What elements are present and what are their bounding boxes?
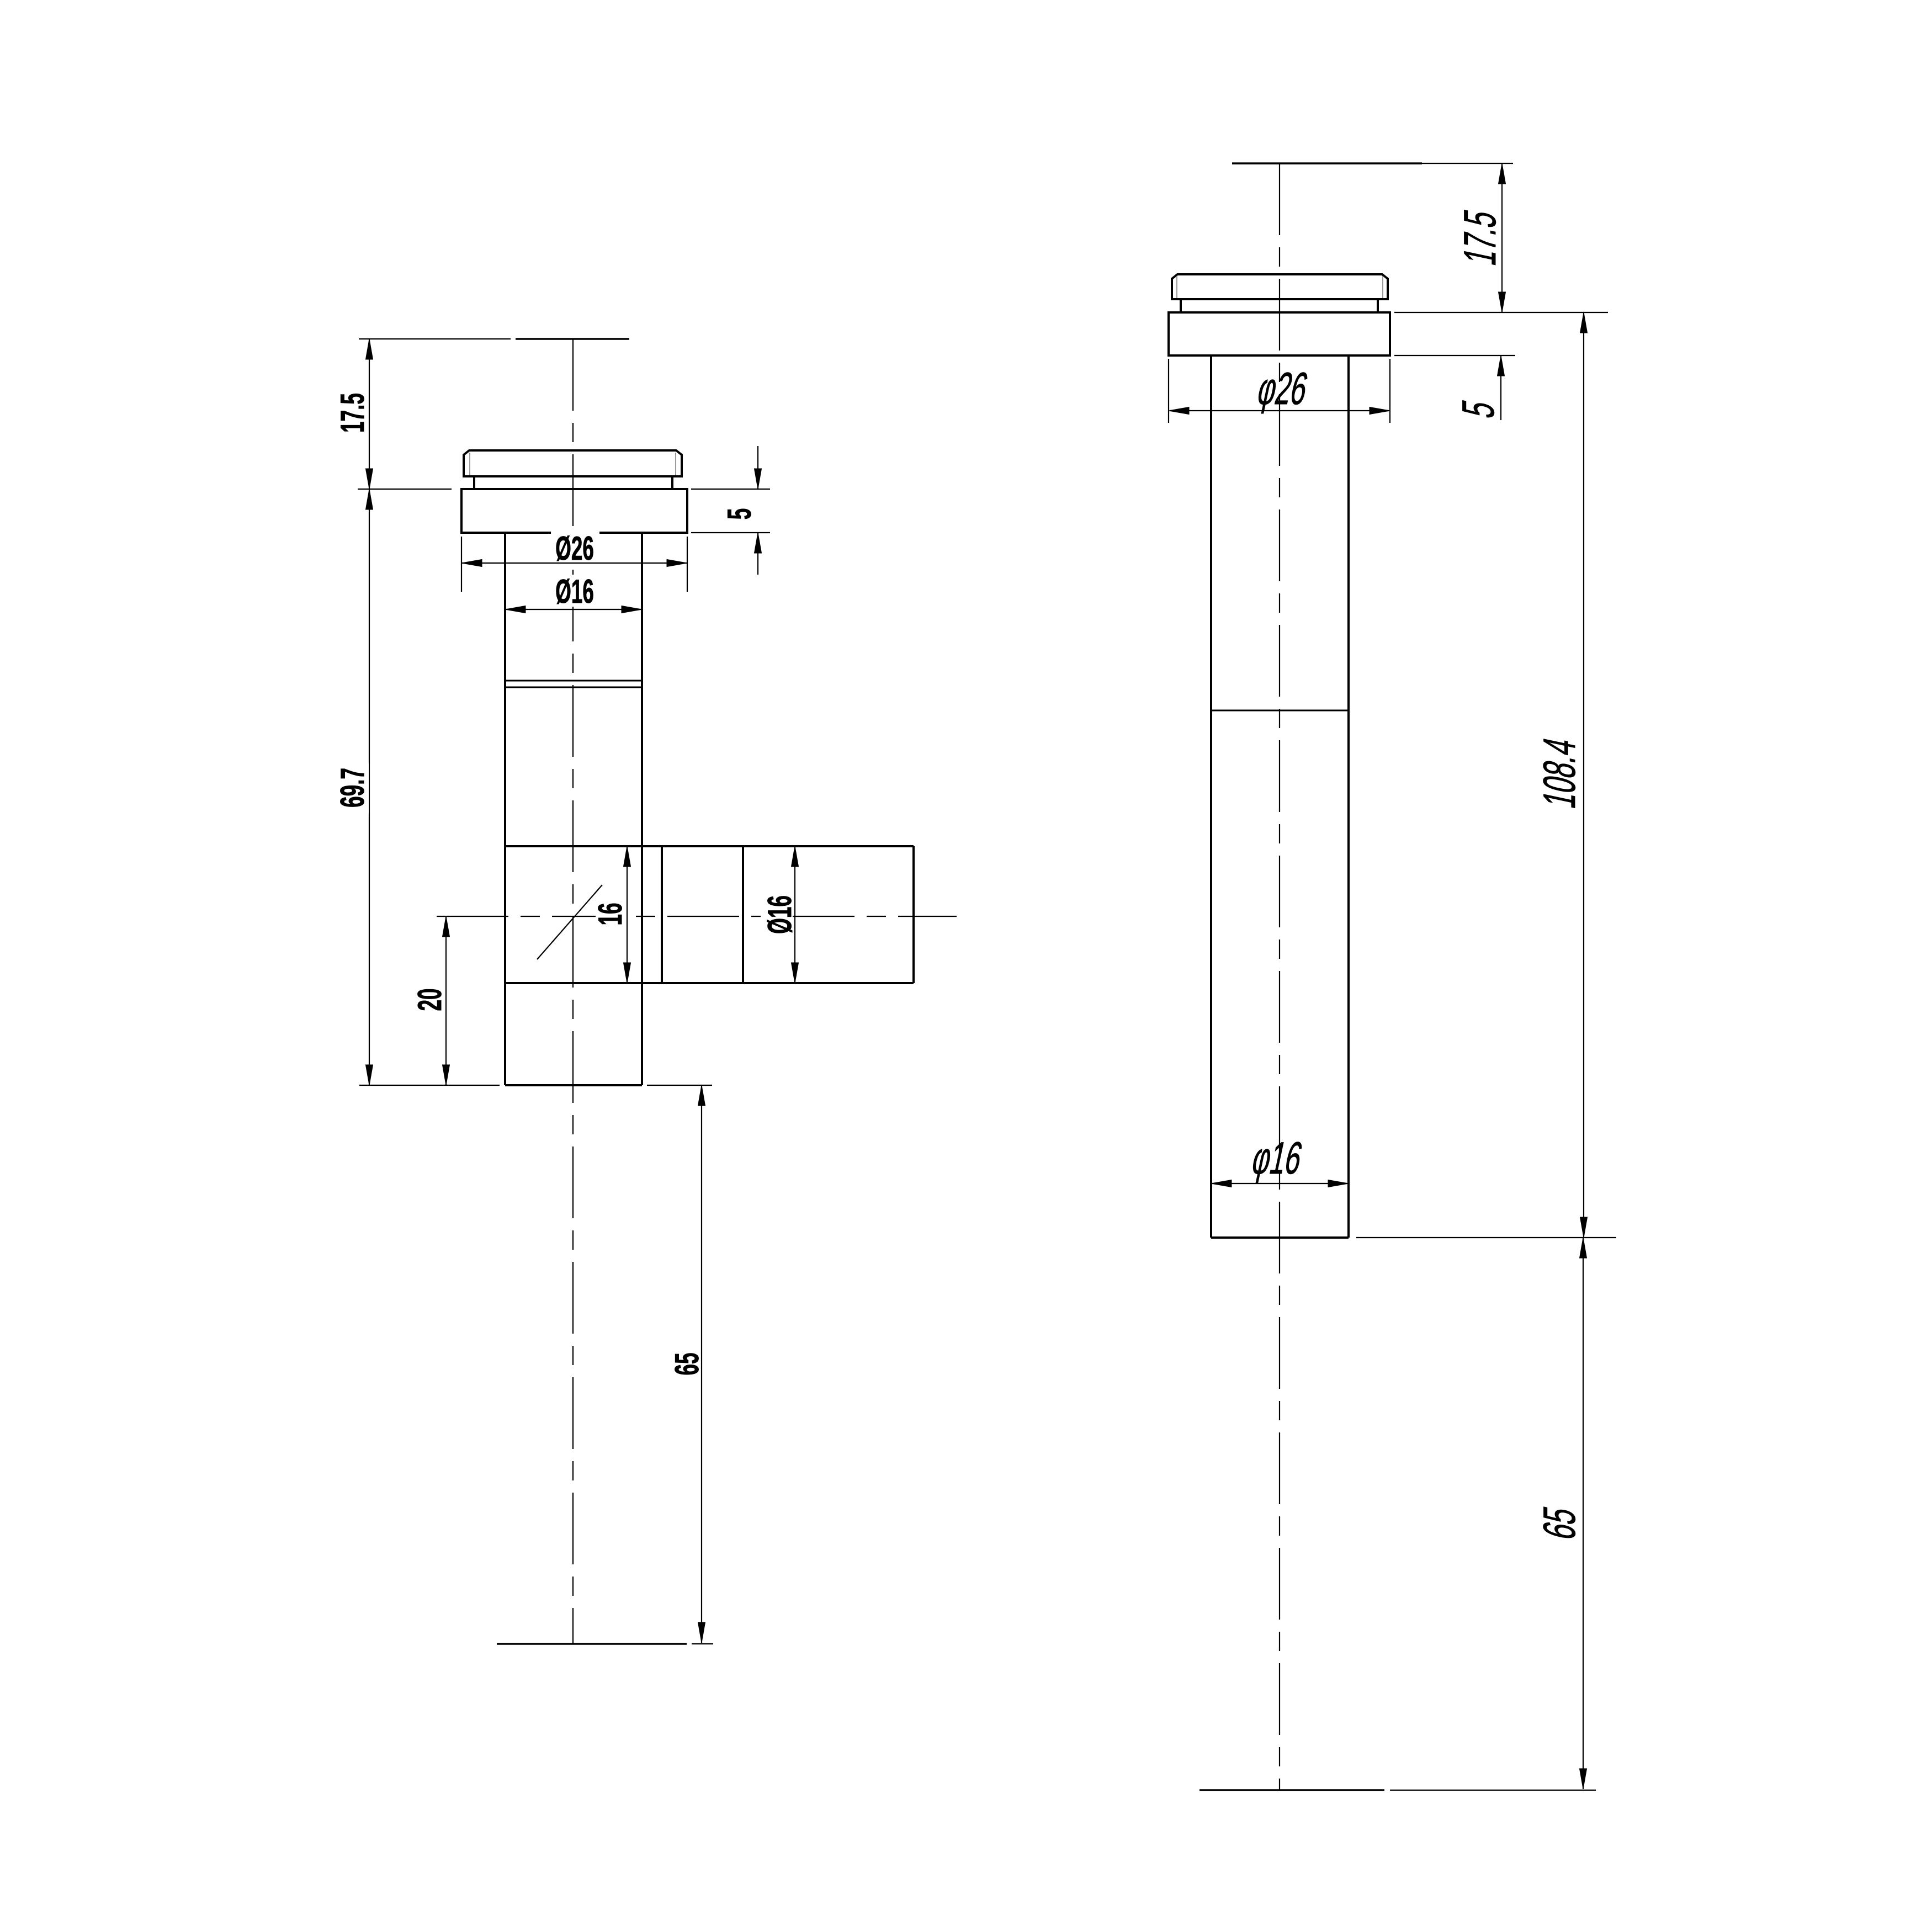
svg-text:65: 65	[668, 1352, 705, 1375]
svg-text:69.7: 69.7	[334, 768, 371, 808]
svg-text:20: 20	[411, 988, 448, 1011]
svg-text:Ø26: Ø26	[555, 530, 594, 567]
svg-text:17.5: 17.5	[334, 393, 371, 433]
svg-text:108.4: 108.4	[1534, 734, 1585, 813]
svg-text:5: 5	[721, 508, 758, 520]
svg-text:16: 16	[592, 903, 629, 925]
svg-text:Ø16: Ø16	[761, 895, 798, 934]
svg-text:Ø16: Ø16	[555, 573, 594, 610]
svg-text:17.5: 17.5	[1455, 205, 1505, 269]
